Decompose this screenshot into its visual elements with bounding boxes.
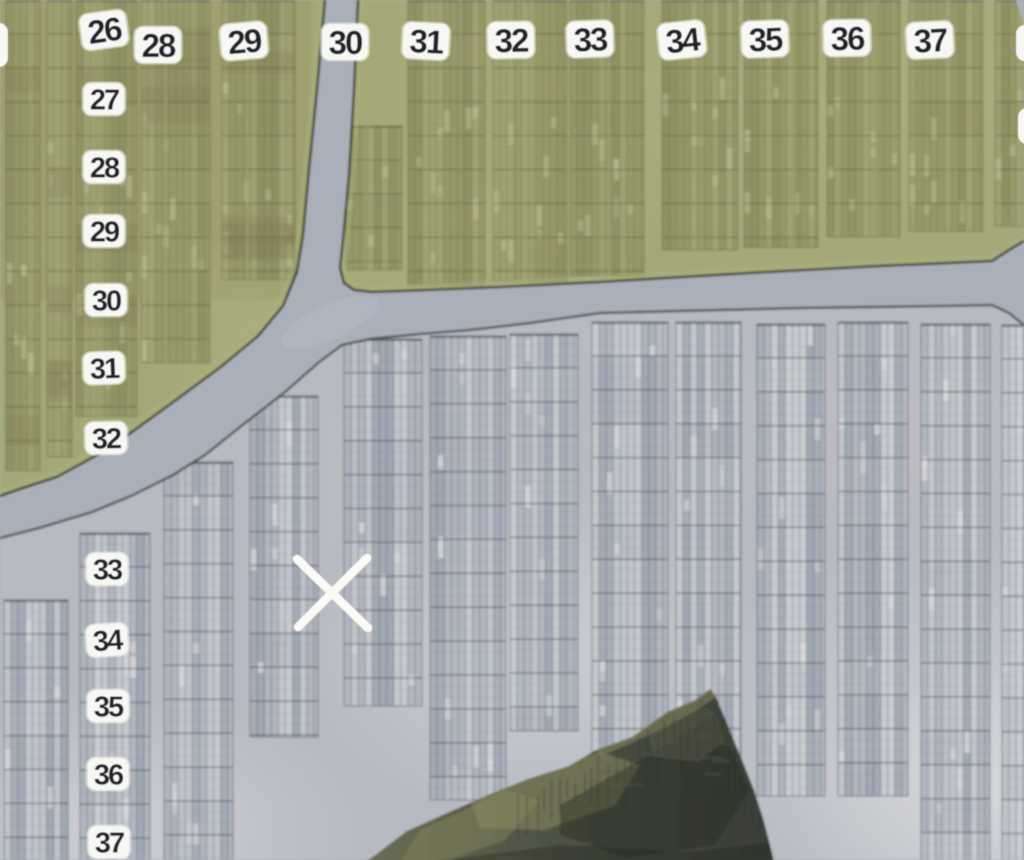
svg-text:31: 31 xyxy=(89,353,120,386)
svg-text:29: 29 xyxy=(90,216,120,248)
svg-text:37: 37 xyxy=(95,827,124,859)
svg-text:32: 32 xyxy=(494,22,529,60)
svg-text:30: 30 xyxy=(92,285,121,317)
svg-text:28: 28 xyxy=(90,152,120,184)
svg-text:33: 33 xyxy=(93,554,123,586)
svg-text:35: 35 xyxy=(748,20,784,58)
svg-text:36: 36 xyxy=(830,20,865,58)
svg-text:28: 28 xyxy=(142,27,176,64)
svg-text:31: 31 xyxy=(409,22,445,61)
svg-text:35: 35 xyxy=(94,691,124,723)
svg-text:36: 36 xyxy=(94,759,124,791)
svg-text:32: 32 xyxy=(92,423,122,456)
svg-text:34: 34 xyxy=(92,624,124,658)
svg-text:33: 33 xyxy=(573,20,609,58)
svg-text:37: 37 xyxy=(913,21,948,60)
svg-text:27: 27 xyxy=(90,84,119,116)
svg-text:29: 29 xyxy=(226,21,263,61)
svg-text:30: 30 xyxy=(329,24,362,61)
